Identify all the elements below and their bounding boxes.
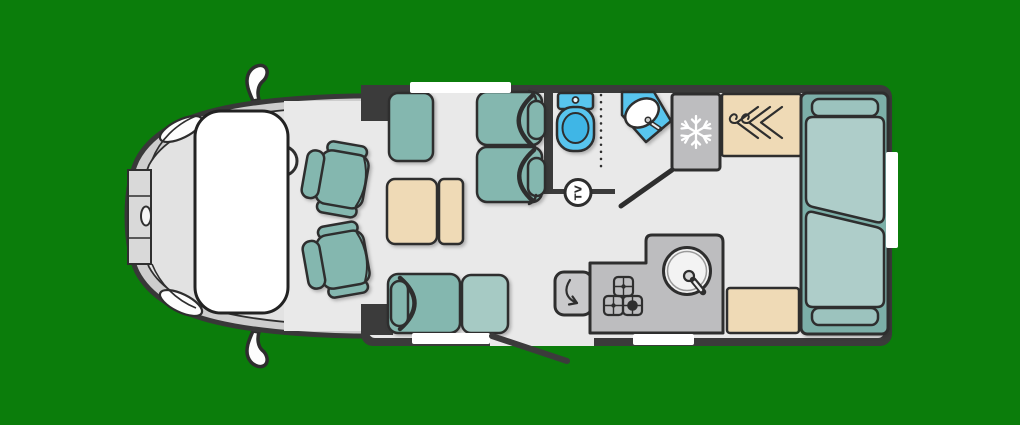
headrest (528, 101, 545, 139)
bedside-unit (727, 288, 799, 333)
travel-seat-2 (477, 147, 545, 204)
kitchen-window (633, 334, 694, 345)
bench-window (412, 333, 490, 344)
tv-mount: TV (565, 180, 591, 206)
floorplan-canvas: TV (0, 0, 1020, 425)
table-with-extension-leaf (387, 179, 463, 244)
wardrobe-body (722, 94, 801, 156)
side-sofa (389, 93, 433, 161)
burner-dot (611, 303, 615, 307)
bottom-pillow-shelf (812, 308, 878, 325)
rear-bed (801, 93, 888, 334)
ottoman-seat (462, 275, 508, 333)
flush-button-icon (573, 97, 579, 103)
upper-mattress (806, 117, 884, 222)
toilet-bowl-inner (563, 113, 589, 143)
fridge-freezer (672, 94, 720, 170)
headrest (528, 158, 545, 196)
burner-dot (621, 284, 625, 288)
lower-mattress (806, 212, 884, 307)
bedroom-side-window (886, 152, 898, 248)
tv-label: TV (574, 185, 585, 201)
table-extension-leaf (439, 179, 463, 244)
burner-large-dot (627, 300, 638, 311)
wardrobe (722, 94, 801, 156)
door-handle (141, 207, 151, 226)
bench-headrest (391, 281, 408, 326)
travel-seat-1 (477, 91, 545, 147)
windscreen (195, 111, 288, 313)
toilet (557, 93, 594, 151)
top-pillow-shelf (812, 99, 878, 116)
flip-up-worktop (555, 272, 592, 315)
bench-seat (388, 274, 460, 333)
table-main-leaf (387, 179, 437, 244)
round-sink (664, 248, 711, 295)
front-lounge-window (410, 82, 511, 93)
